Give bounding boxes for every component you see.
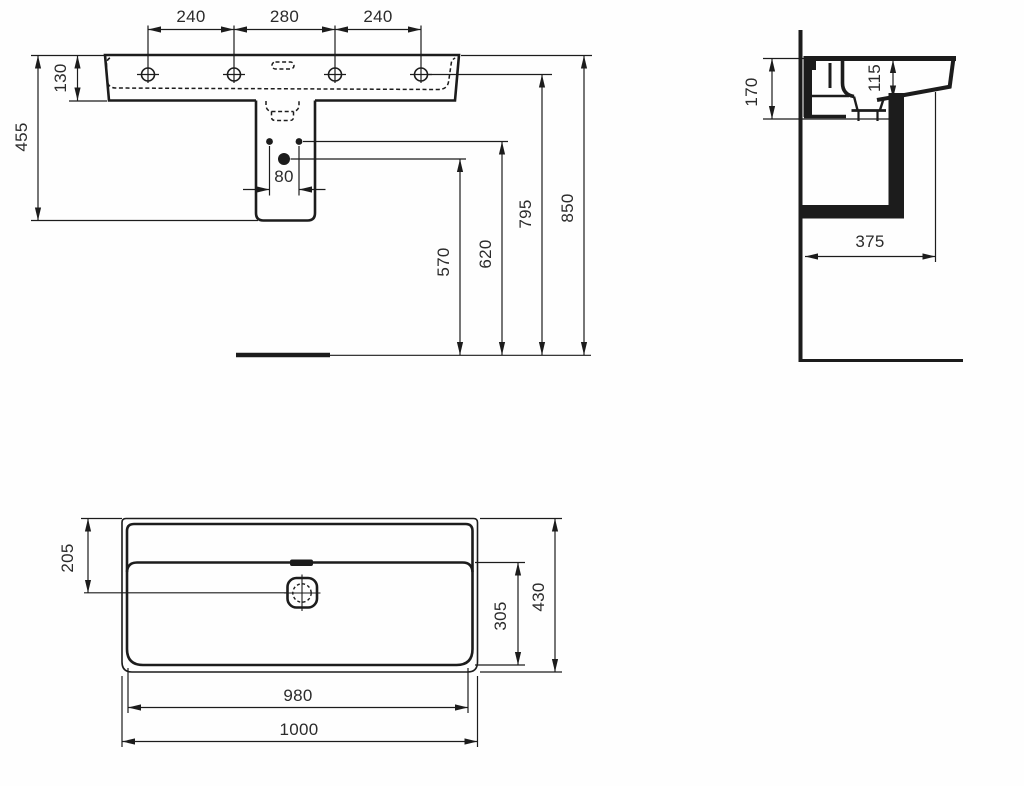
dim-label-tap-center: 280 [270, 7, 299, 26]
dim-label-drain-to-front: 305 [491, 601, 510, 630]
dim-label-bowl-depth: 115 [865, 64, 884, 92]
drain-funnel-hidden [266, 101, 299, 121]
trap-elbow-to-wall [801, 205, 904, 219]
basin-back-section [804, 56, 817, 117]
dim-label-basin-height: 130 [51, 63, 70, 92]
left-height-dimensions: 130 455 [12, 56, 258, 221]
side-dimensions: 170 115 375 [742, 59, 936, 263]
overflow-slot [272, 62, 294, 69]
drawing-sheet: 240 280 240 130 455 80 [0, 0, 1024, 786]
drain-outlet-hole [278, 153, 290, 165]
dim-label-overall-width: 1000 [279, 720, 318, 739]
dim-label-back-height: 170 [742, 77, 761, 106]
technical-drawing-canvas: 240 280 240 130 455 80 [0, 0, 1024, 786]
dim-label-tap-left: 240 [176, 7, 205, 26]
plan-outer-outline [122, 519, 478, 673]
bowl-back-wall [843, 61, 855, 97]
side-section-view: 170 115 375 [742, 30, 963, 362]
plan-rim-outline [127, 524, 473, 665]
basin-outline [105, 55, 459, 101]
dim-label-drain-height: 570 [434, 247, 453, 276]
dim-label-wall-to-trap: 375 [855, 232, 884, 251]
trap-downpipe [889, 93, 905, 211]
dim-label-total-height: 455 [12, 122, 31, 151]
dim-label-fixing-spacing: 80 [274, 167, 294, 186]
basin-front-face [950, 58, 954, 88]
dim-label-depth: 430 [529, 582, 548, 611]
plan-view: 205 305 430 980 1000 [58, 519, 562, 748]
front-elevation-view: 240 280 240 130 455 80 [12, 7, 592, 355]
basin-underside [877, 87, 951, 101]
dim-label-fixing-height: 620 [476, 239, 495, 268]
funnel-side [854, 97, 858, 111]
fixing-hole-right [296, 138, 303, 145]
basin-inner-hidden-edge [107, 58, 456, 90]
dim-label-rim-to-drain: 205 [58, 543, 77, 572]
plan-dimensions: 205 305 430 980 1000 [58, 519, 562, 748]
dim-label-inner-width: 980 [283, 686, 312, 705]
fixing-hole-left [266, 138, 273, 145]
dim-label-rim-height: 850 [558, 193, 577, 222]
dim-label-deck-height: 795 [516, 199, 535, 228]
dim-label-tap-right: 240 [363, 7, 392, 26]
overflow-slot-plan [290, 560, 313, 567]
drain-plan [84, 575, 321, 612]
tap-spacing-dimensions: 240 280 240 [148, 7, 421, 83]
